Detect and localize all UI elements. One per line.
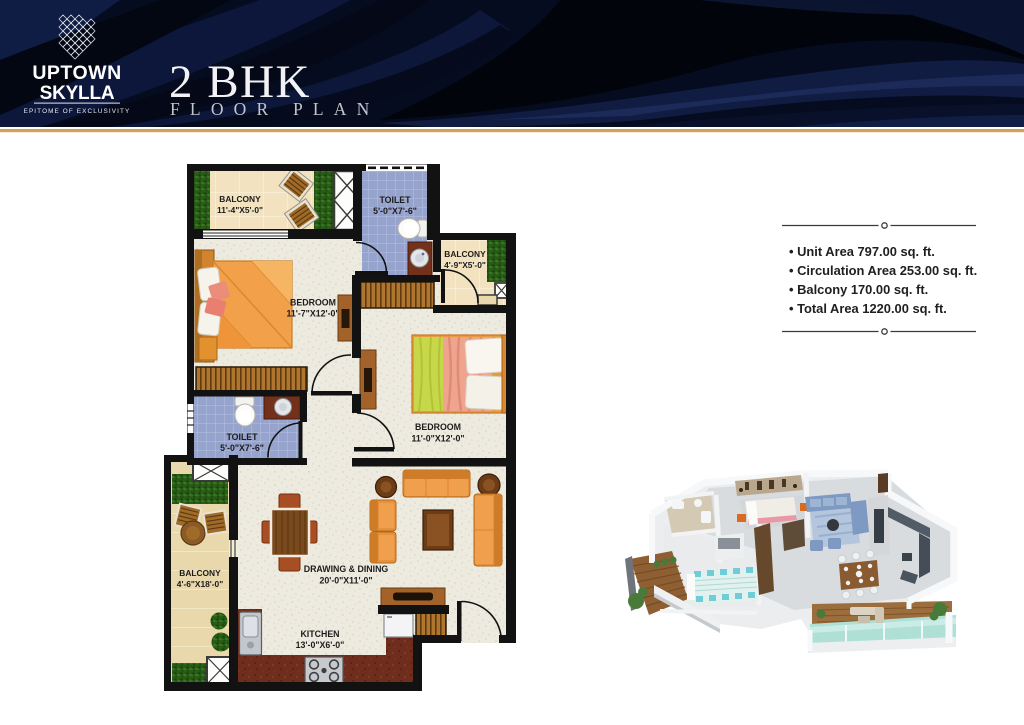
svg-text:BEDROOM: BEDROOM	[415, 422, 461, 432]
svg-text:KITCHEN: KITCHEN	[300, 629, 339, 639]
svg-text:TOILET: TOILET	[379, 195, 411, 205]
svg-text:TOILET: TOILET	[226, 432, 258, 442]
svg-text:BALCONY: BALCONY	[219, 194, 261, 204]
svg-text:SKYLLA: SKYLLA	[40, 83, 115, 104]
svg-text:• Total Area 1220.00 sq. ft.: • Total Area 1220.00 sq. ft.	[789, 301, 947, 316]
svg-text:20'-0"X11'-0": 20'-0"X11'-0"	[319, 576, 372, 586]
svg-text:BEDROOM: BEDROOM	[290, 298, 336, 308]
svg-text:• Balcony 170.00 sq. ft.: • Balcony 170.00 sq. ft.	[789, 282, 928, 297]
svg-text:4'-6"X18'-0": 4'-6"X18'-0"	[177, 579, 223, 589]
svg-text:UPTOWN: UPTOWN	[32, 62, 121, 84]
svg-text:BALCONY: BALCONY	[444, 249, 486, 259]
svg-text:11'-4"X5'-0": 11'-4"X5'-0"	[217, 205, 263, 215]
svg-text:EPITOME OF EXCLUSIVITY: EPITOME OF EXCLUSIVITY	[24, 108, 131, 115]
svg-text:5'-0"X7'-6": 5'-0"X7'-6"	[373, 206, 417, 216]
svg-text:4'-9"X5'-0": 4'-9"X5'-0"	[444, 260, 486, 270]
svg-text:FLOOR PLAN: FLOOR PLAN	[170, 99, 379, 119]
svg-text:• Circulation Area 253.00 sq.: • Circulation Area 253.00 sq. ft.	[789, 263, 977, 278]
svg-text:11'-0"X12'-0": 11'-0"X12'-0"	[411, 434, 464, 444]
svg-text:BALCONY: BALCONY	[179, 568, 221, 578]
svg-text:13'-0"X6'-0": 13'-0"X6'-0"	[296, 640, 345, 650]
svg-text:5'-0"X7'-6": 5'-0"X7'-6"	[220, 443, 264, 453]
svg-text:• Unit Area 797.00 sq. ft.: • Unit Area 797.00 sq. ft.	[789, 244, 935, 259]
svg-text:11'-7"X12'-0": 11'-7"X12'-0"	[286, 309, 339, 319]
svg-text:DRAWING & DINING: DRAWING & DINING	[304, 564, 389, 574]
